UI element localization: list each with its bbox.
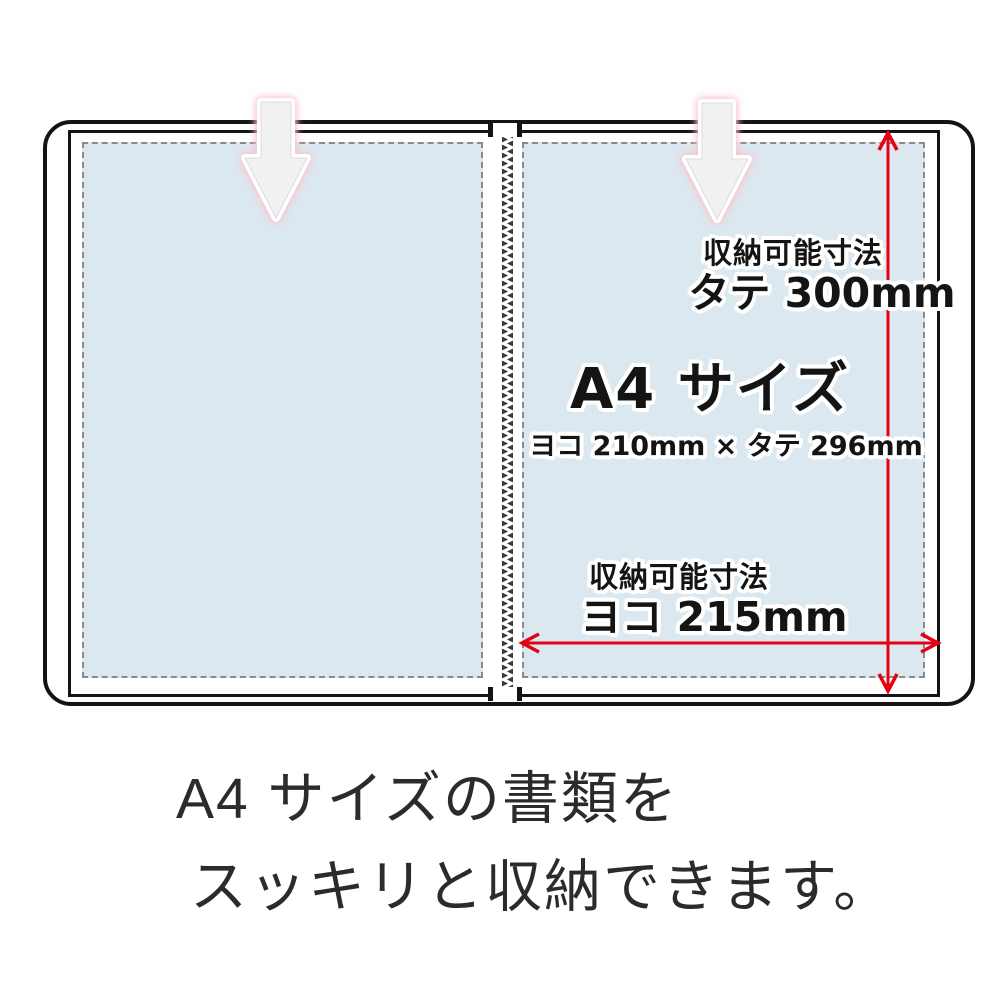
pocket-left	[82, 142, 483, 678]
a4-size-dimensions: ヨコ 210mm × タテ 296mm	[529, 433, 922, 460]
storable-size-label-vertical: 収納可能寸法	[703, 239, 883, 268]
spine-hinge-bottom	[488, 687, 522, 701]
caption-line-2: スッキリと収納できます。	[190, 859, 892, 916]
spine-hinge-top	[488, 123, 522, 137]
a4-size-title: A4 サイズ	[570, 362, 850, 418]
spine-stitch-icon	[500, 136, 515, 692]
caption-line-1: A4 サイズの書類を	[176, 771, 679, 828]
insert-down-arrow-icon	[680, 101, 754, 223]
horizontal-dimension-value: ヨコ 215mm	[580, 597, 847, 638]
vertical-dimension-arrow-icon	[876, 126, 900, 698]
vertical-dimension-value: タテ 300mm	[688, 273, 955, 314]
product-diagram: 収納可能寸法 タテ 300mm A4 サイズ ヨコ 210mm × タテ 296…	[0, 0, 1000, 1000]
insert-down-arrow-icon	[239, 100, 313, 222]
storable-size-label-horizontal: 収納可能寸法	[589, 563, 769, 592]
